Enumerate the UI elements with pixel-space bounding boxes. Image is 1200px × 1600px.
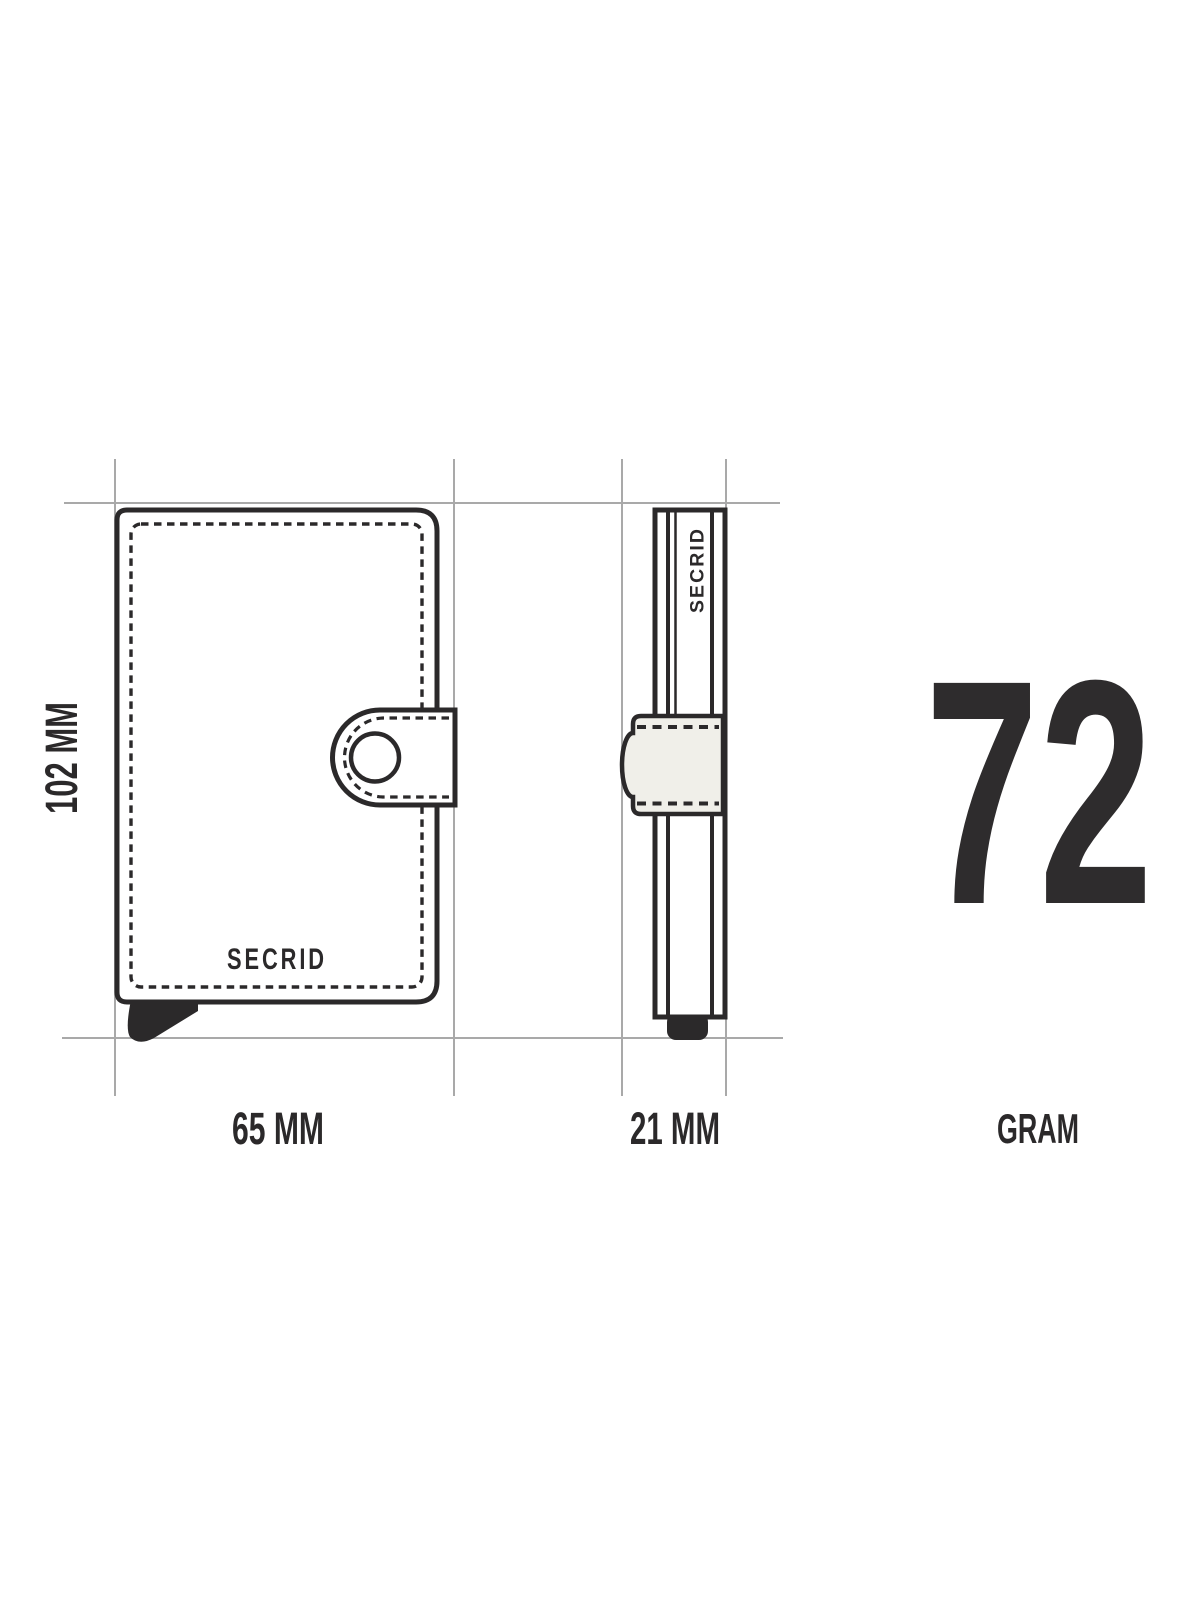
- snap-strap-side: [622, 716, 723, 814]
- side-view: SECRID: [622, 510, 725, 1040]
- weight-value: 72: [925, 613, 1153, 971]
- front-view: SECRID: [117, 510, 455, 1042]
- weight-spec: 72 GRAM: [925, 613, 1153, 1152]
- brand-logo-front: SECRID: [227, 943, 327, 976]
- width-label: 65 MM: [232, 1103, 324, 1154]
- brand-logo-side: SECRID: [688, 527, 709, 613]
- snap-button: [351, 734, 399, 782]
- wallet-dimensions-diagram: SECRID SECRID 102 MM 65 MM 21 MM: [0, 0, 1200, 1600]
- weight-unit-label: GRAM: [997, 1105, 1079, 1152]
- depth-label: 21 MM: [630, 1103, 720, 1154]
- card-eject-lever-front: [128, 1000, 198, 1042]
- diagram-canvas: SECRID SECRID 102 MM 65 MM 21 MM: [0, 0, 1200, 1600]
- height-label: 102 MM: [36, 702, 87, 814]
